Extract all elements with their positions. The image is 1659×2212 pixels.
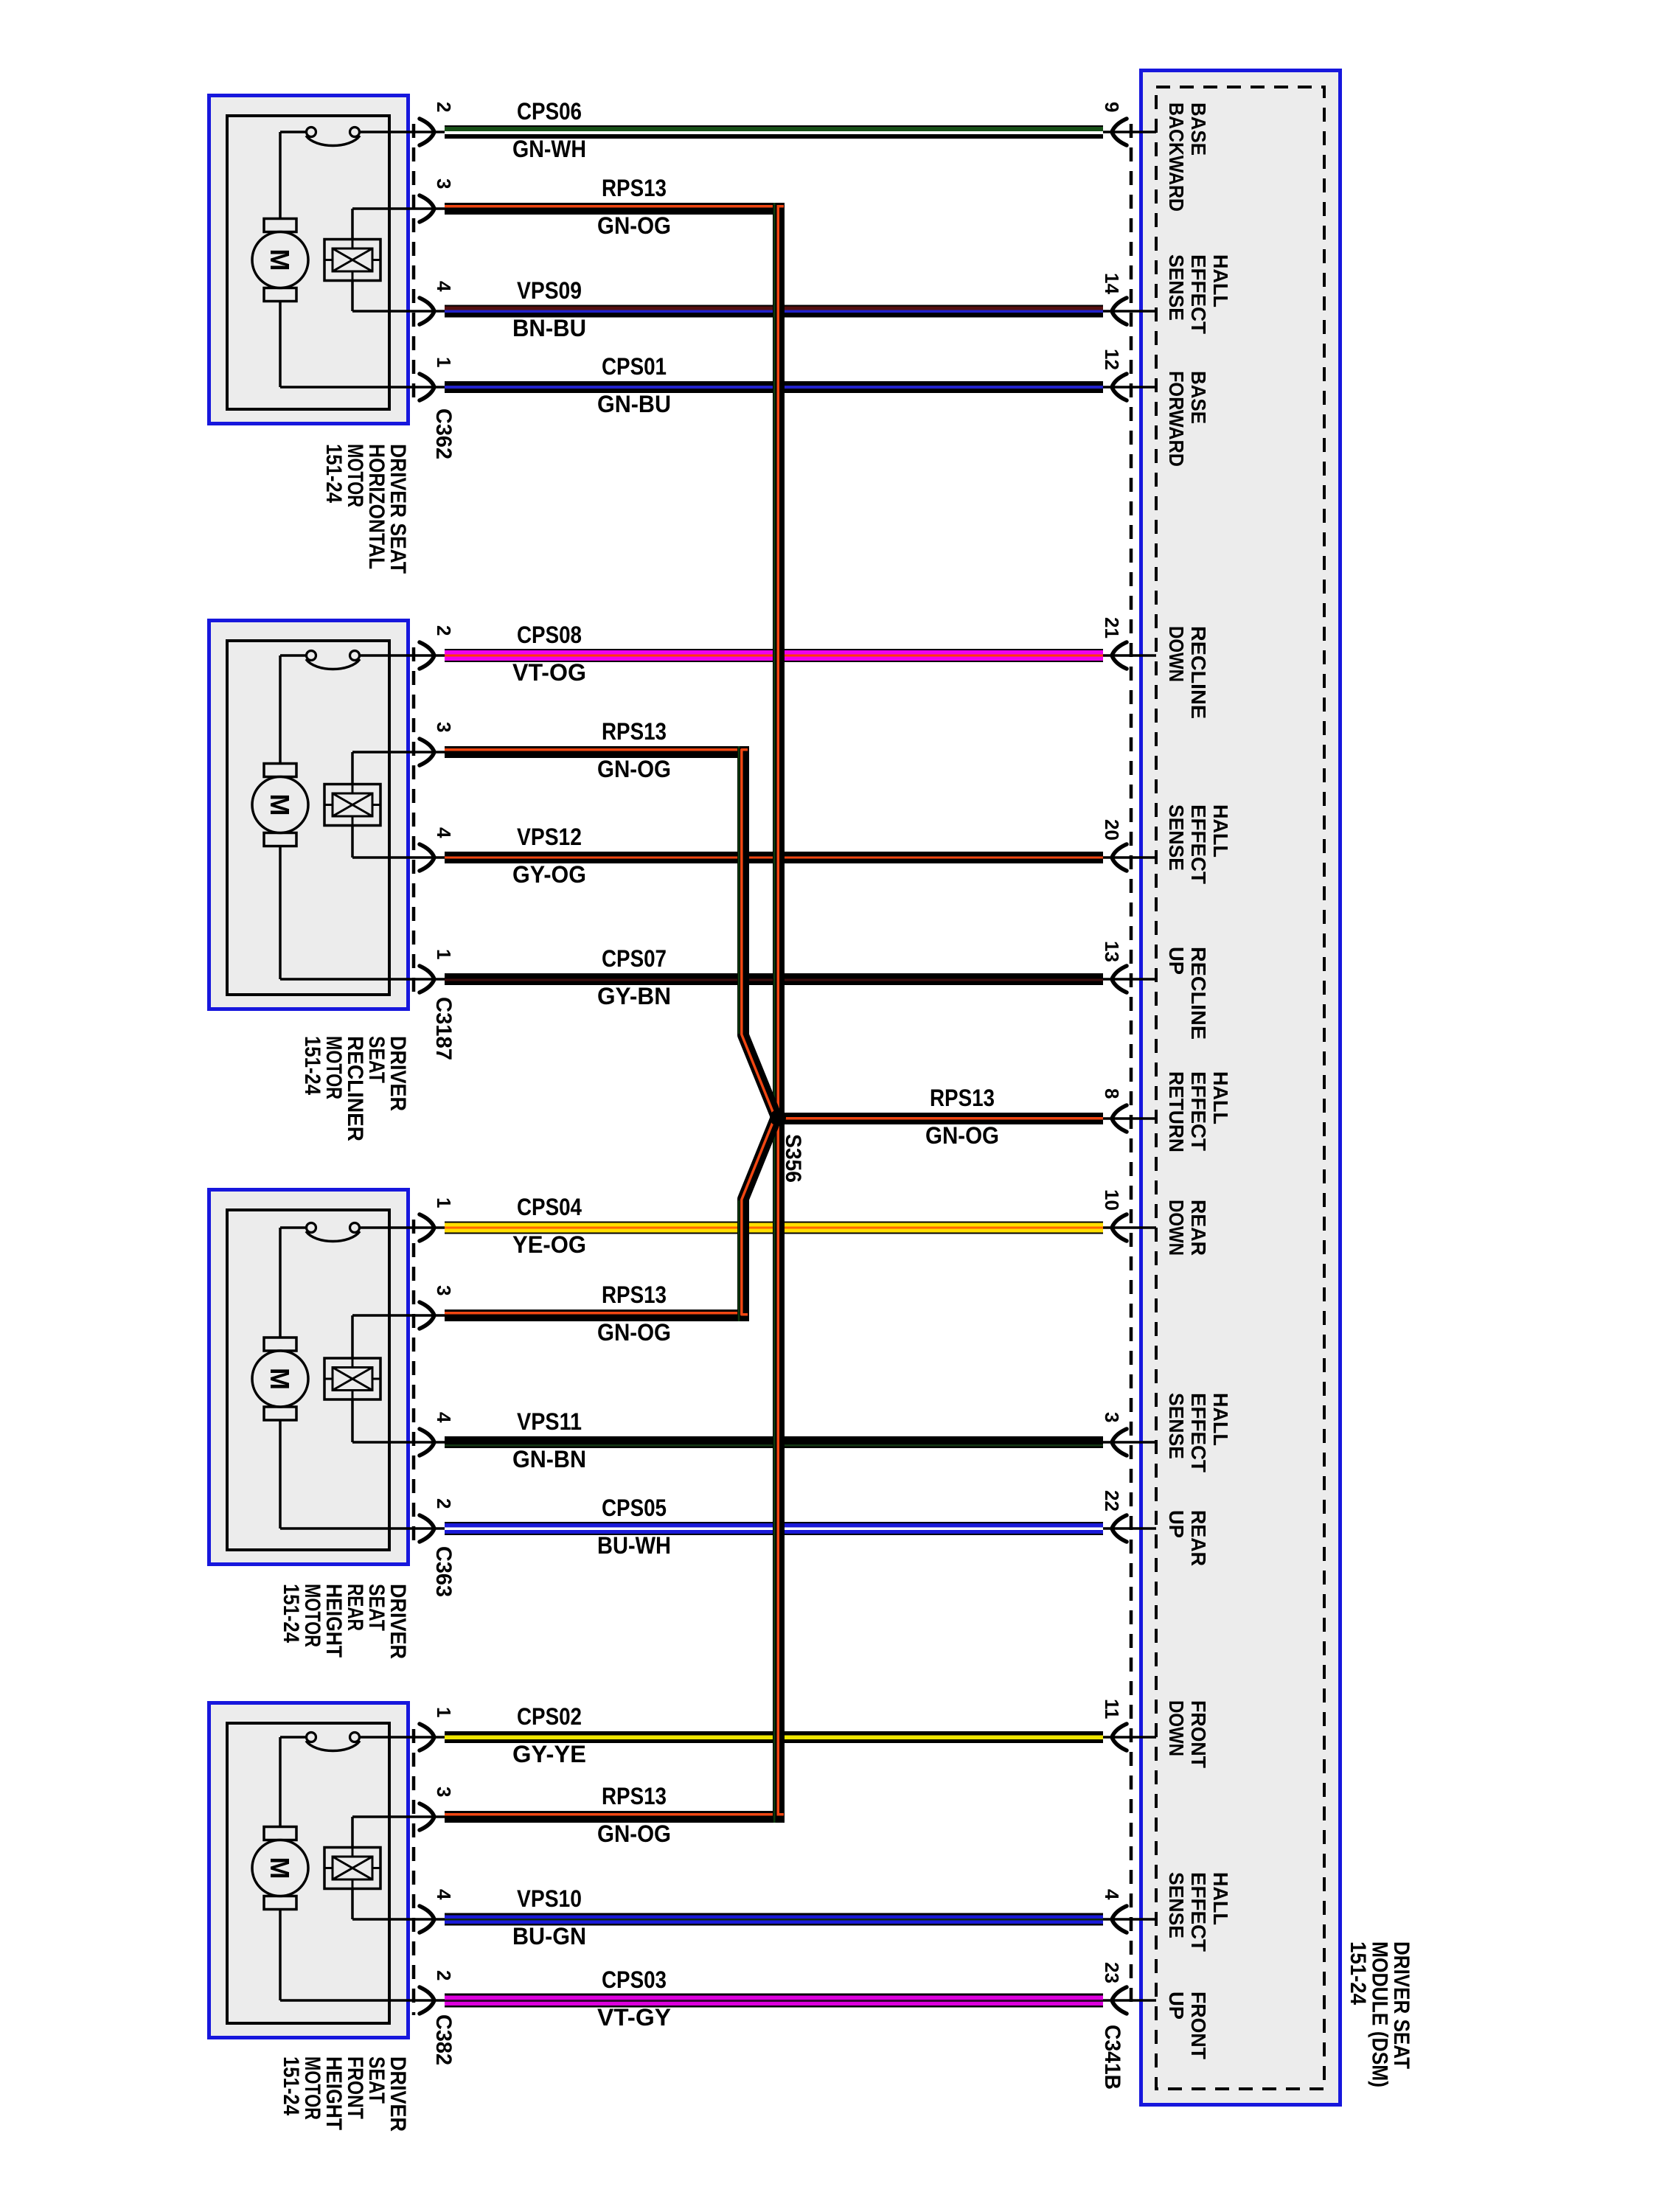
svg-text:BASE: BASE [1187, 371, 1210, 424]
svg-text:DOWN: DOWN [1165, 1700, 1188, 1756]
svg-text:C363: C363 [431, 1546, 456, 1597]
svg-text:BU-WH: BU-WH [597, 1532, 671, 1559]
svg-text:DRIVER SEAT: DRIVER SEAT [1389, 1941, 1413, 2069]
svg-text:M: M [265, 794, 295, 816]
svg-text:YE-OG: YE-OG [512, 1231, 586, 1258]
svg-text:RPS13: RPS13 [602, 1783, 667, 1809]
svg-text:CPS05: CPS05 [602, 1495, 667, 1521]
svg-text:14: 14 [1101, 273, 1123, 294]
svg-text:13: 13 [1101, 941, 1123, 962]
svg-text:23: 23 [1101, 1962, 1123, 1983]
svg-text:VT-GY: VT-GY [597, 2004, 671, 2031]
svg-text:151-24: 151-24 [279, 1584, 303, 1643]
svg-text:RPS13: RPS13 [602, 1281, 667, 1308]
svg-text:GY-OG: GY-OG [512, 861, 586, 888]
svg-text:SENSE: SENSE [1165, 1393, 1188, 1459]
svg-text:8: 8 [1101, 1088, 1123, 1099]
svg-text:22: 22 [1101, 1490, 1123, 1512]
svg-text:REAR: REAR [1187, 1510, 1210, 1566]
svg-text:VPS09: VPS09 [517, 277, 582, 304]
svg-text:C362: C362 [431, 408, 456, 459]
svg-text:BACKWARD: BACKWARD [1165, 102, 1188, 212]
svg-text:SENSE: SENSE [1165, 1872, 1188, 1938]
svg-text:M: M [265, 1857, 295, 1879]
svg-text:4: 4 [1101, 1889, 1123, 1900]
svg-text:2: 2 [433, 1970, 455, 1980]
svg-text:SENSE: SENSE [1165, 254, 1188, 321]
svg-text:4: 4 [433, 1412, 455, 1423]
svg-text:GN-OG: GN-OG [925, 1122, 999, 1149]
svg-text:GN-OG: GN-OG [597, 756, 671, 782]
svg-text:151-24: 151-24 [1346, 1941, 1370, 2005]
svg-text:3: 3 [433, 178, 455, 189]
svg-text:CPS04: CPS04 [517, 1194, 582, 1220]
svg-text:UP: UP [1165, 1992, 1188, 2020]
svg-text:2: 2 [433, 1498, 455, 1509]
svg-text:C341B: C341B [1100, 2025, 1124, 2090]
svg-text:GN-BN: GN-BN [512, 1446, 586, 1472]
svg-text:REAR: REAR [1187, 1200, 1210, 1256]
svg-text:C382: C382 [431, 2014, 456, 2065]
svg-text:EFFECT: EFFECT [1187, 804, 1210, 884]
svg-text:2: 2 [433, 625, 455, 636]
svg-text:EFFECT: EFFECT [1187, 254, 1210, 334]
svg-text:21: 21 [1101, 617, 1123, 639]
svg-text:RECLINE: RECLINE [1187, 626, 1210, 719]
svg-text:1: 1 [433, 949, 455, 959]
svg-text:HALL: HALL [1209, 1393, 1232, 1446]
svg-text:9: 9 [1101, 102, 1123, 112]
svg-text:GY-YE: GY-YE [512, 1741, 586, 1767]
svg-text:GN-WH: GN-WH [512, 136, 586, 162]
svg-text:S356: S356 [781, 1134, 805, 1183]
svg-text:EFFECT: EFFECT [1187, 1071, 1210, 1151]
svg-text:M: M [265, 249, 295, 271]
svg-text:12: 12 [1101, 349, 1123, 370]
svg-text:3: 3 [433, 1285, 455, 1295]
svg-text:DOWN: DOWN [1165, 626, 1188, 682]
svg-text:GN-BU: GN-BU [597, 391, 671, 417]
svg-text:SENSE: SENSE [1165, 804, 1188, 871]
svg-text:UP: UP [1165, 947, 1188, 975]
svg-text:11: 11 [1101, 1699, 1123, 1719]
svg-text:3: 3 [433, 722, 455, 732]
svg-text:151-24: 151-24 [321, 444, 346, 503]
svg-text:EFFECT: EFFECT [1187, 1872, 1210, 1952]
svg-text:CPS02: CPS02 [517, 1703, 582, 1730]
svg-text:GN-OG: GN-OG [597, 212, 671, 239]
svg-text:3: 3 [433, 1787, 455, 1797]
svg-text:GN-OG: GN-OG [597, 1820, 671, 1847]
svg-text:10: 10 [1101, 1189, 1123, 1211]
svg-text:2: 2 [433, 102, 455, 112]
svg-text:1: 1 [433, 357, 455, 367]
svg-text:CPS08: CPS08 [517, 622, 582, 648]
svg-text:RPS13: RPS13 [602, 175, 667, 201]
svg-text:151-24: 151-24 [279, 2056, 303, 2115]
svg-text:3: 3 [1101, 1412, 1123, 1422]
svg-text:M: M [265, 1368, 295, 1390]
svg-text:1: 1 [433, 1197, 455, 1208]
svg-text:HALL: HALL [1209, 1071, 1232, 1124]
svg-text:BN-BU: BN-BU [512, 315, 586, 341]
svg-text:FORWARD: FORWARD [1165, 371, 1188, 467]
svg-text:VPS10: VPS10 [517, 1885, 582, 1912]
svg-text:CPS06: CPS06 [517, 98, 582, 125]
svg-text:4: 4 [433, 1889, 455, 1900]
svg-text:HALL: HALL [1209, 804, 1232, 858]
svg-text:4: 4 [433, 827, 455, 838]
svg-text:4: 4 [433, 281, 455, 292]
svg-text:EFFECT: EFFECT [1187, 1393, 1210, 1472]
svg-text:RPS13: RPS13 [930, 1085, 995, 1111]
svg-text:VPS11: VPS11 [517, 1408, 582, 1435]
svg-text:FRONT: FRONT [1187, 1700, 1210, 1768]
svg-text:BU-GN: BU-GN [512, 1923, 586, 1950]
svg-text:C3187: C3187 [431, 997, 456, 1060]
svg-text:HALL: HALL [1209, 254, 1232, 307]
svg-text:GN-OG: GN-OG [597, 1319, 671, 1346]
svg-text:RETURN: RETURN [1165, 1071, 1188, 1152]
svg-text:RECLINE: RECLINE [1187, 947, 1210, 1040]
svg-text:VT-OG: VT-OG [512, 659, 586, 686]
svg-text:RPS13: RPS13 [602, 718, 667, 745]
svg-text:UP: UP [1165, 1510, 1188, 1538]
svg-text:BASE: BASE [1187, 102, 1210, 156]
svg-text:MODULE (DSM): MODULE (DSM) [1368, 1941, 1392, 2087]
svg-text:DOWN: DOWN [1165, 1200, 1188, 1256]
svg-text:GY-BN: GY-BN [597, 983, 671, 1009]
svg-text:1: 1 [433, 1707, 455, 1717]
svg-text:CPS07: CPS07 [602, 945, 667, 972]
svg-text:VPS12: VPS12 [517, 824, 582, 850]
svg-text:HALL: HALL [1209, 1872, 1232, 1925]
svg-text:CPS01: CPS01 [602, 353, 667, 380]
svg-text:FRONT: FRONT [1187, 1992, 1210, 2059]
svg-text:20: 20 [1101, 819, 1123, 841]
svg-text:CPS03: CPS03 [602, 1966, 667, 1993]
svg-text:151-24: 151-24 [300, 1036, 324, 1095]
